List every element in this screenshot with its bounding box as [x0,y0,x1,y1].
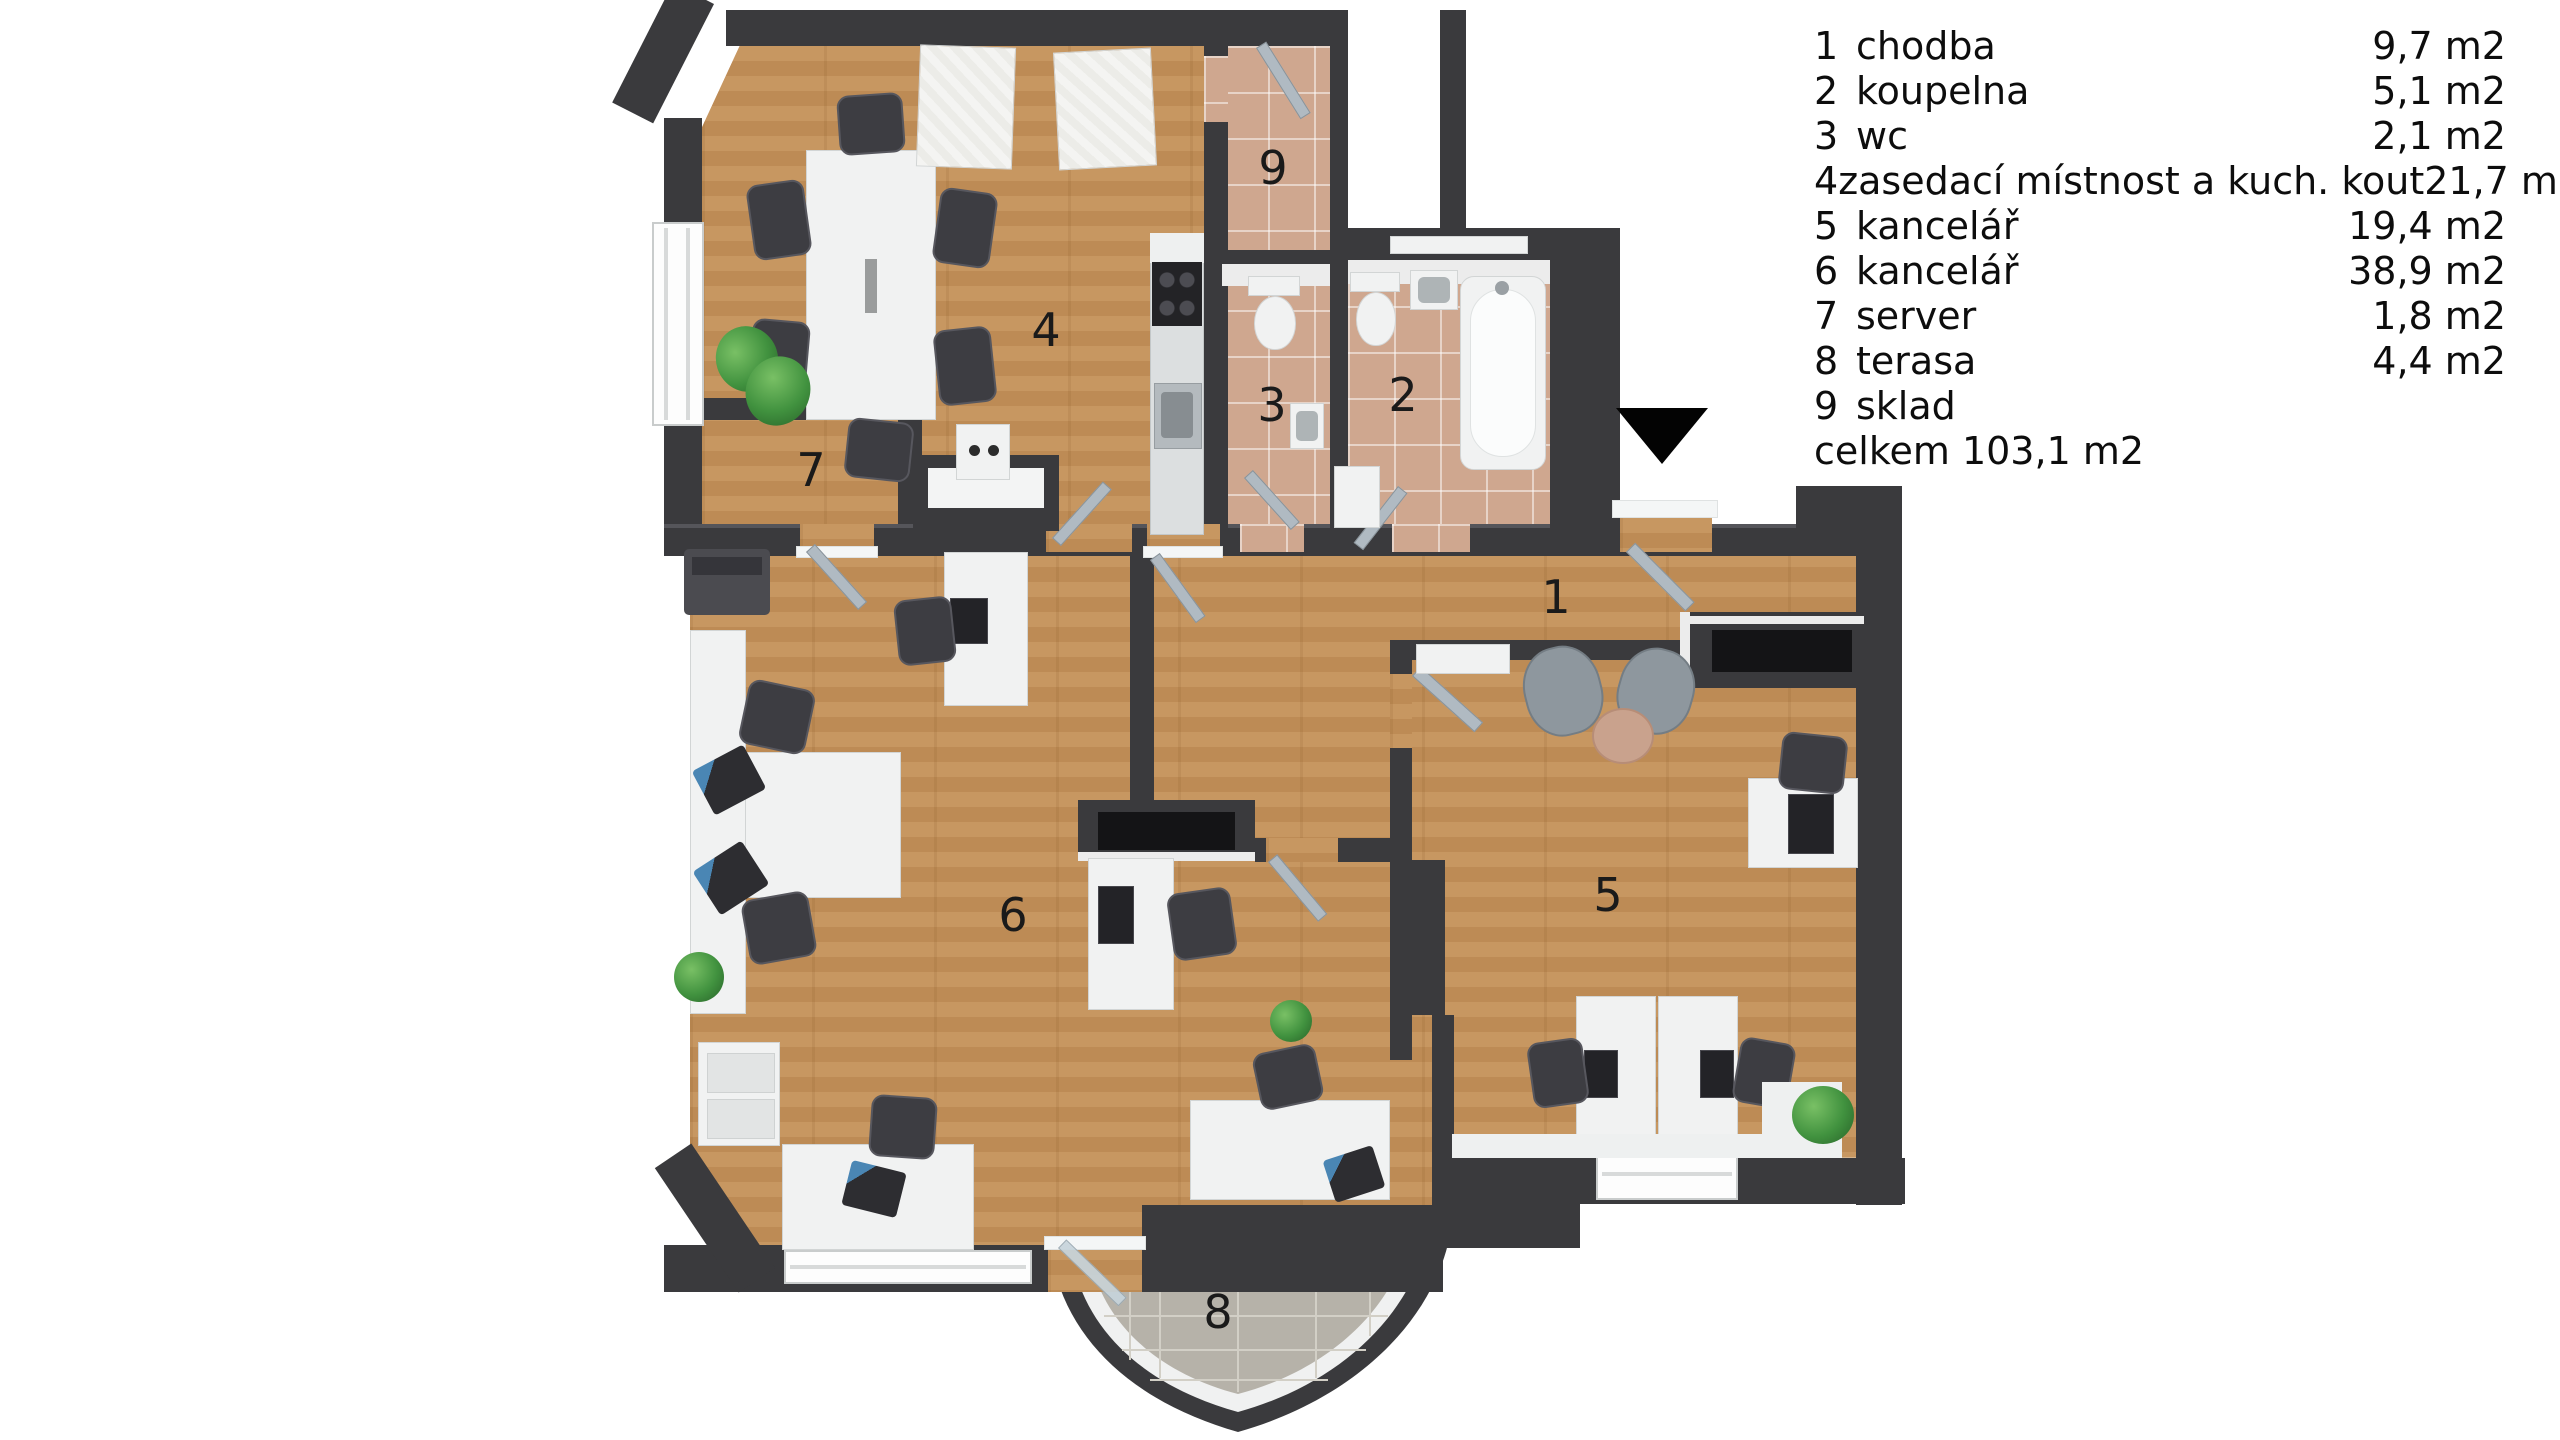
legend-room-name: zasedací místnost a kuch. kout [1838,159,2424,204]
plant [1792,1086,1854,1144]
door-opening [1390,674,1412,748]
wall-segment [612,0,714,123]
legend-room-number: 1 [1814,24,1856,69]
toilet-bowl [1254,296,1296,350]
room-label-9: 9 [1258,145,1287,191]
monitor [950,598,988,644]
wall-segment [1390,860,1445,1015]
office-chair [843,417,915,484]
legend-room-area: 1,8 m2 [2372,294,2506,339]
office-chair [1166,886,1239,962]
office-chair [737,678,817,757]
plant [674,952,724,1002]
computer [1098,886,1134,944]
office-chair [931,186,999,269]
legend-row: 8 terasa 4,4 m2 [1814,339,2506,384]
floor-plan-page: 1 2 3 4 5 6 7 8 9 1 chodba 9,7 m2 2 koup… [0,0,2560,1440]
electrical-box [956,424,1010,480]
legend-room-name: kancelář [1856,249,2348,294]
legend-room-number: 9 [1814,384,1856,429]
room-label-3: 3 [1257,382,1286,428]
entrance-marker-icon [1616,408,1708,464]
room-label-5: 5 [1593,872,1622,918]
legend-row: 4 zasedací místnost a kuch. kout 21,7 m2 [1814,159,2506,204]
wall-segment [1432,1158,1580,1248]
door-opening [1392,524,1470,552]
door-opening [1204,56,1228,122]
toilet-bowl [1356,292,1396,346]
monitor [1700,1050,1734,1098]
washbasin [1410,270,1458,310]
conference-table [806,150,936,420]
legend-room-name: terasa [1856,339,2372,384]
legend-room-area: 4,4 m2 [2372,339,2506,384]
legend-room-number: 7 [1814,294,1856,339]
closet-room5-shelf [1690,616,1864,624]
bathtub [1460,276,1546,470]
office-chair [836,92,906,156]
legend-row: 6 kancelář 38,9 m2 [1814,249,2506,294]
toilet [1350,272,1400,292]
wall-segment [1440,10,1466,230]
cooktop [1152,262,1202,326]
legend-room-number: 3 [1814,114,1856,159]
legend-room-number: 4 [1814,159,1838,204]
printer [684,549,770,615]
side-table [1592,708,1654,764]
entrance-threshold [1612,500,1718,518]
legend-room-number: 8 [1814,339,1856,384]
sideboard [1416,644,1510,674]
legend-row: 7 server 1,8 m2 [1814,294,2506,339]
legend-room-area: 38,9 m2 [2348,249,2506,294]
wall-segment [1142,1205,1443,1292]
cabinet [698,1042,780,1146]
closet-room5-interior [1712,630,1852,672]
legend-room-name: chodba [1856,24,2372,69]
computer [1788,794,1834,854]
wall-segment [1130,552,1154,808]
legend-total: celkem 103,1 m2 [1814,429,2506,474]
office-chair [932,325,998,407]
legend-row: 9 sklad [1814,384,2506,429]
room-label-7: 7 [796,447,825,493]
legend-row: 2 koupelna 5,1 m2 [1814,69,2506,114]
wall-segment [1432,1015,1454,1158]
office-chair [1777,731,1849,796]
room-label-8: 8 [1203,1289,1232,1335]
legend-row: 1 chodba 9,7 m2 [1814,24,2506,69]
legend-room-area: 21,7 m2 [2424,159,2560,204]
legend-room-name: kancelář [1856,204,2348,249]
washbasin [1290,403,1324,449]
room-label-6: 6 [998,892,1027,938]
window [784,1250,1032,1284]
room-label-1: 1 [1541,574,1570,620]
whiteboard [916,44,1016,169]
legend-row: 3 wc 2,1 m2 [1814,114,2506,159]
legend-room-number: 2 [1814,69,1856,114]
office-chair [745,178,813,261]
legend-row: 5 kancelář 19,4 m2 [1814,204,2506,249]
legend-room-number: 6 [1814,249,1856,294]
wall-segment [726,10,1348,46]
legend-room-area: 2,1 m2 [2372,114,2506,159]
kitchen-counter-top [1150,233,1204,263]
wall-segment [1550,228,1620,552]
monitor [1584,1050,1618,1098]
room-label-4: 4 [1031,307,1060,353]
door-opening [1240,524,1304,552]
room-label-2: 2 [1388,372,1417,418]
legend-room-area: 9,7 m2 [2372,24,2506,69]
closet-room6-interior [1098,812,1235,850]
kitchen-sink [1154,383,1202,449]
bathroom-cabinet [1334,466,1380,528]
legend-room-number: 5 [1814,204,1856,249]
legend-room-name: wc [1856,114,2372,159]
plant [716,316,812,428]
legend-room-area: 19,4 m2 [2348,204,2506,249]
legend-room-name: server [1856,294,2372,339]
desk [745,752,901,898]
office-chair [1526,1036,1591,1109]
legend: 1 chodba 9,7 m2 2 koupelna 5,1 m2 3 wc 2… [1814,24,2506,474]
office-chair [868,1094,938,1160]
office-chair [740,890,818,967]
legend-room-area: 5,1 m2 [2372,69,2506,114]
wall-segment [1222,250,1330,264]
toilet [1248,276,1300,296]
whiteboard [1053,48,1157,171]
plant [1270,1000,1312,1042]
window [652,222,704,426]
office-chair [893,595,958,667]
legend-room-name: sklad [1856,384,2506,429]
radiator [1390,236,1528,254]
legend-room-name: koupelna [1856,69,2372,114]
